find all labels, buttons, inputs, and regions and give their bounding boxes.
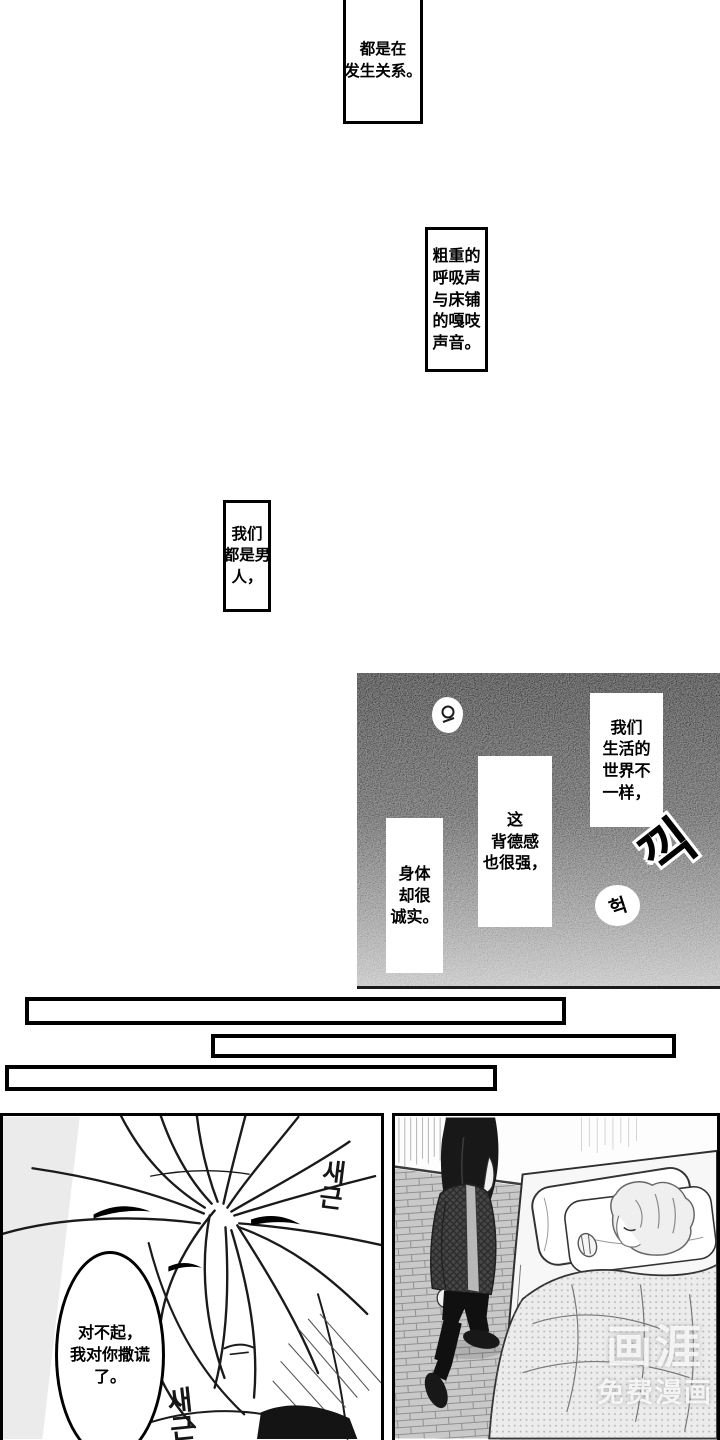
caption-text: 这 背德感 也很强， [483, 809, 547, 874]
caption-text: 都是在 发生关系。 [344, 39, 422, 81]
caption-text: 身体 却很 诚实。 [390, 863, 438, 928]
watermark-tagline: 免费漫画 [597, 1371, 713, 1410]
caption-text: 我们 生活的 世界不 一样， [602, 717, 650, 804]
caption-text: 粗重的 呼吸声 与床铺 的嘎吱 声音。 [432, 245, 480, 354]
manga-page: 都是在 发生关系。 粗重的 呼吸声 与床铺 的嘎吱 声音。 我们 都是男 人， [0, 0, 720, 1440]
watermark-logo: 画涯 [597, 1323, 713, 1371]
caption-box-honest-body: 身体 却很 诚实。 [386, 818, 443, 973]
sigh-bubble [432, 697, 463, 733]
caption-box-breathing: 粗重的 呼吸声 与床铺 的嘎吱 声音。 [425, 227, 488, 372]
empty-caption-bar-3 [5, 1065, 497, 1091]
sfx-gasp: 헉 [605, 890, 630, 921]
site-watermark: 画涯 免费漫画 [597, 1323, 713, 1410]
panel-sleeping-closeup: 새 근 对不起， 我对你撒谎 了。 새 근 [0, 1113, 384, 1440]
caption-box-guilt: 这 背德感 也很强， [478, 756, 552, 927]
sigh-icon [436, 701, 460, 729]
empty-caption-bar-2 [211, 1034, 676, 1058]
gasp-bubble: 헉 [595, 885, 640, 926]
caption-text: 我们 都是男 人， [224, 524, 271, 587]
caption-box-top: 都是在 发生关系。 [343, 0, 423, 124]
caption-box-both-men: 我们 都是男 人， [223, 500, 271, 612]
empty-caption-bar-1 [25, 997, 566, 1025]
speech-text: 对不起， 我对你撒谎 了。 [70, 1322, 150, 1387]
panel-dark-texture: 我们 生活的 世界不 一样， 这 背德感 也很强， 身体 却很 诚实。 끽 헉 [357, 673, 720, 989]
panel-bedroom-scene: 画涯 免费漫画 [392, 1113, 720, 1440]
